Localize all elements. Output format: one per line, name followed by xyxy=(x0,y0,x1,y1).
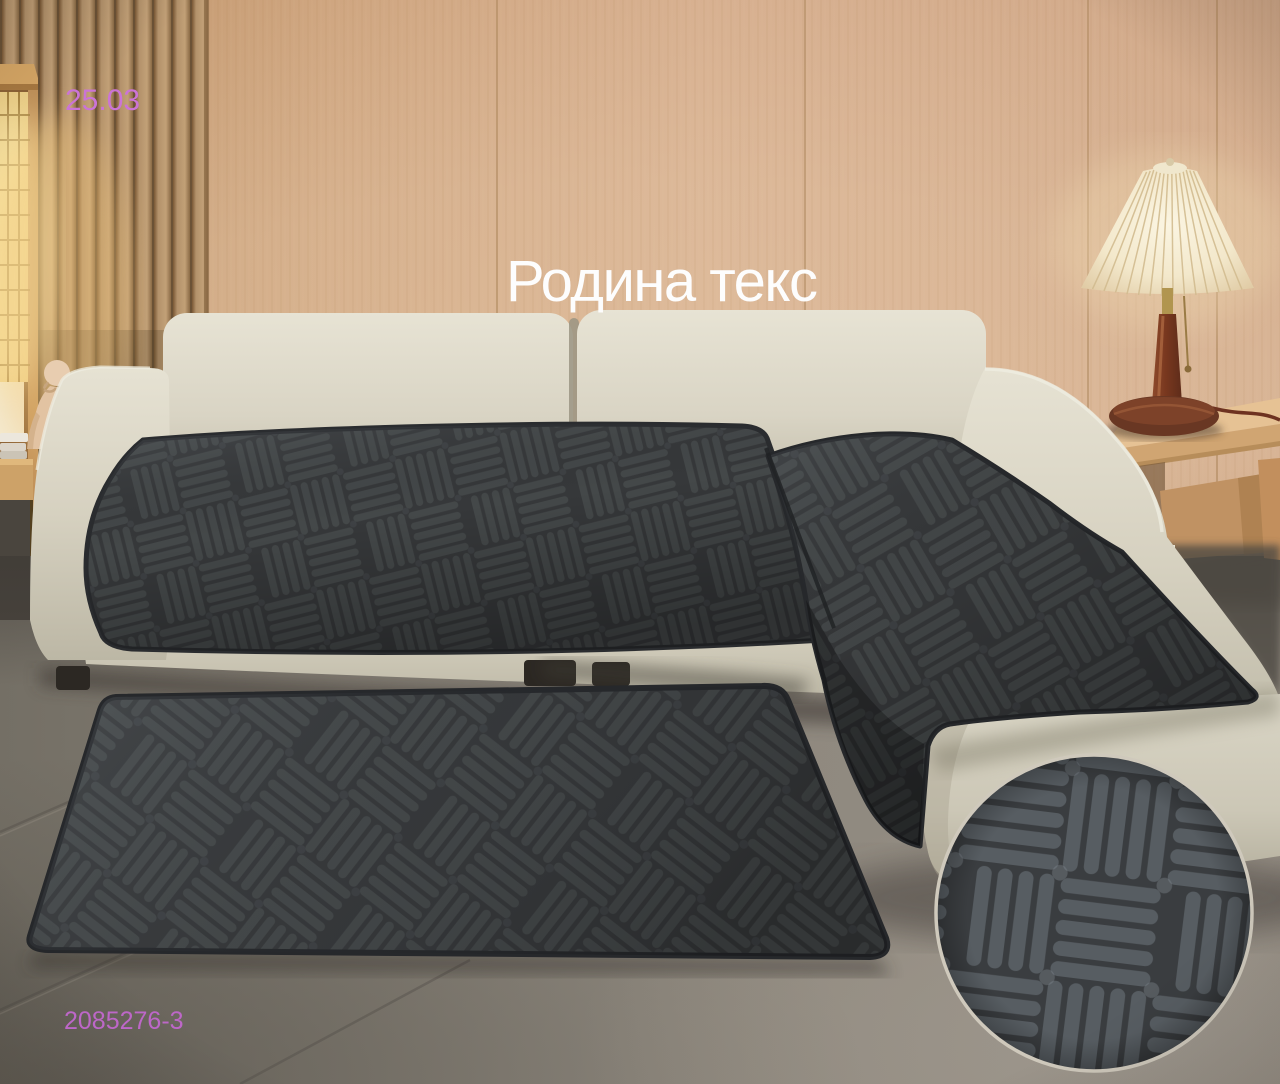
svg-text:Родина текс: Родина текс xyxy=(506,249,817,314)
svg-text:2085276-3: 2085276-3 xyxy=(64,1007,184,1035)
svg-text:25.03: 25.03 xyxy=(65,84,140,117)
